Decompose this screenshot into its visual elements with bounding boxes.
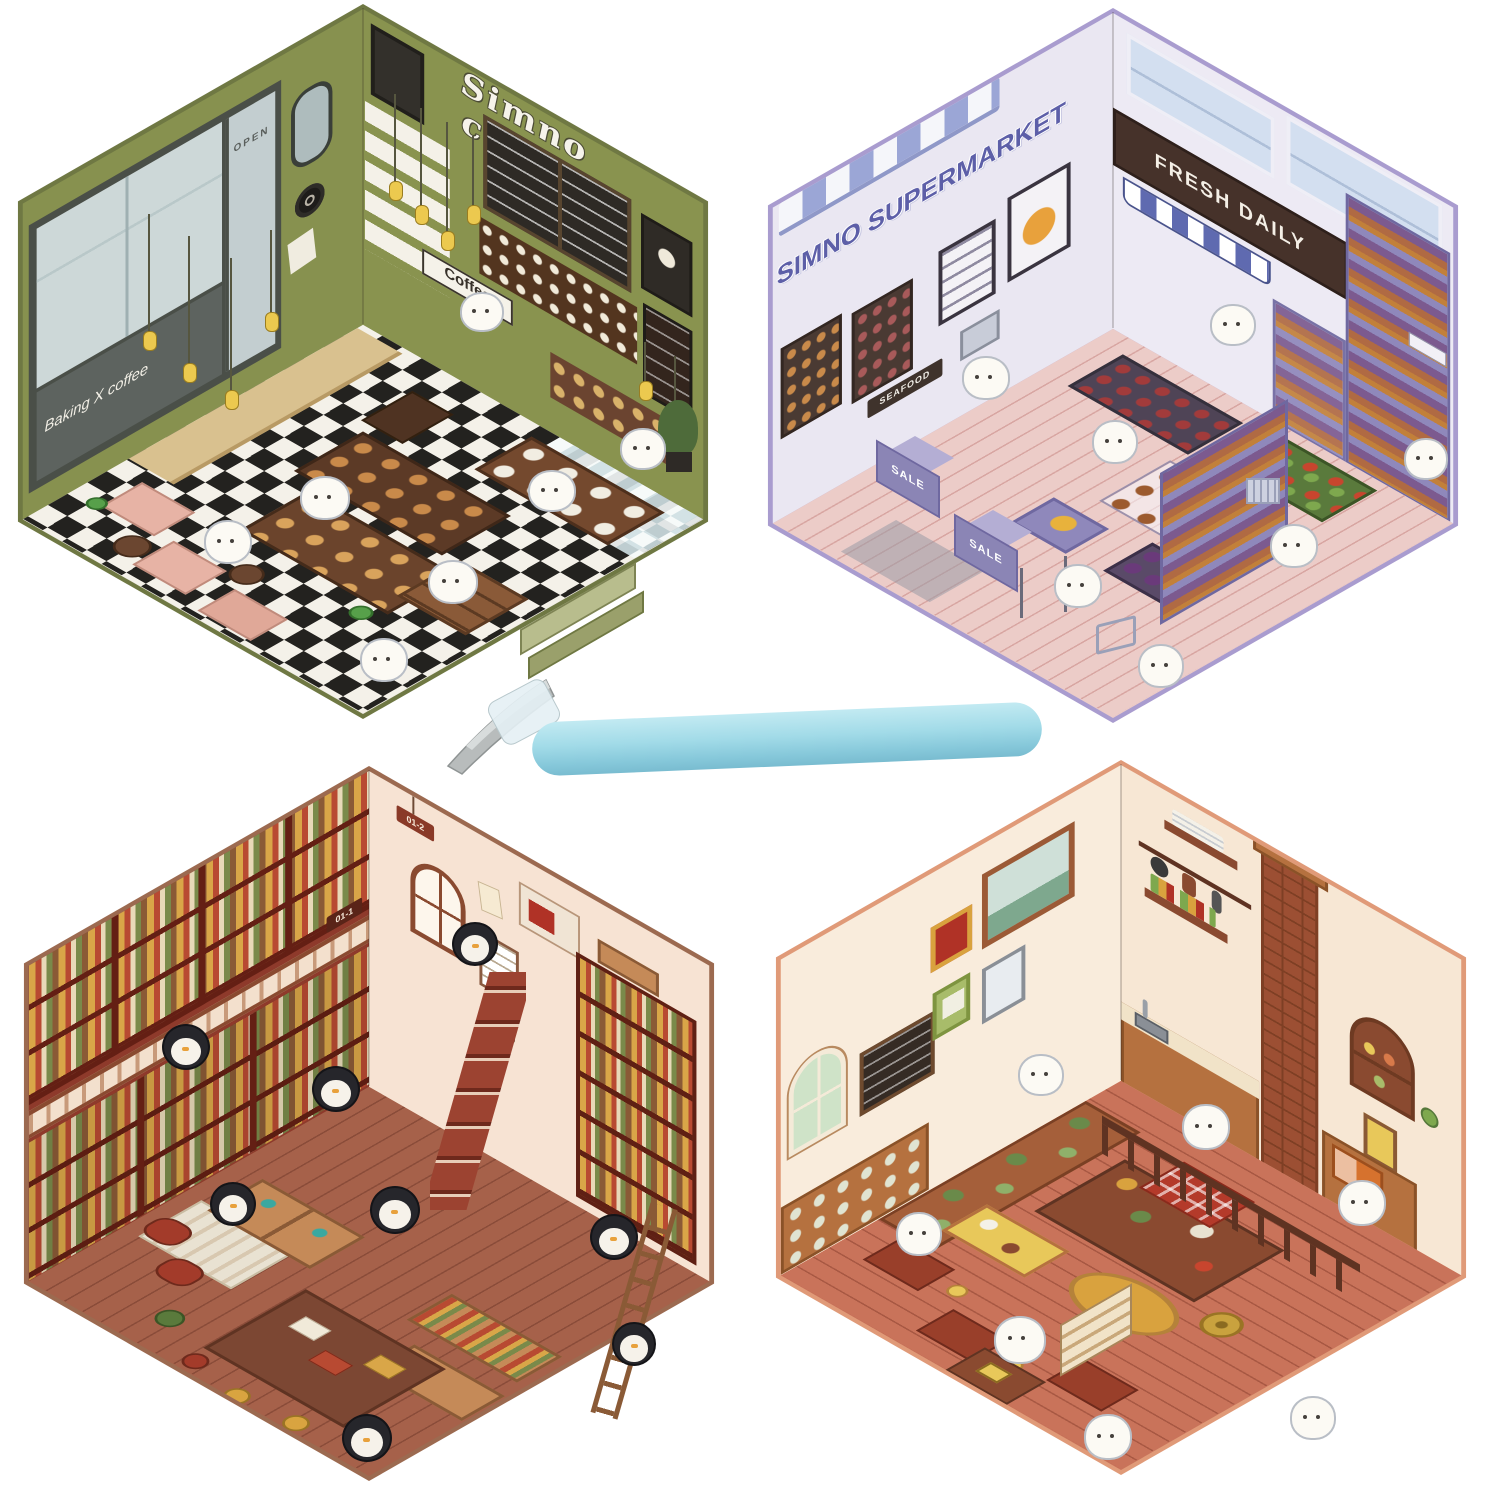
faucet-icon: [1143, 998, 1148, 1019]
character-bunny: [1182, 1104, 1230, 1150]
character-cat: [994, 1316, 1046, 1364]
shelf-divider: [198, 863, 205, 1007]
coffee-shop-diorama: Baking X coffee OPEN Simno coffee: [8, 4, 718, 719]
product-photo: Baking X coffee OPEN Simno coffee: [0, 0, 1500, 1495]
character-penguin: [342, 1414, 392, 1462]
pendant-lamp-icon: [394, 94, 396, 184]
shelf-divider: [137, 1076, 144, 1218]
supermarket-wall-corner-seam: [1112, 12, 1114, 328]
arched-window: [789, 1036, 846, 1158]
red-art-frame: [931, 904, 972, 973]
character-penguin: [370, 1186, 420, 1234]
character-bunny: [1138, 644, 1184, 688]
red-poster: [519, 881, 580, 960]
character-dog: [1084, 1414, 1132, 1460]
character-sheep: [360, 638, 408, 682]
character-sheep: [204, 520, 252, 564]
shelf-tag-01-2: 01-2: [397, 805, 434, 842]
wall-mirror: [291, 74, 332, 175]
character-cat: [1018, 1054, 1064, 1096]
menu-paper: [287, 228, 316, 275]
shelf-divider: [112, 913, 119, 1057]
sign-pole: [1020, 568, 1023, 618]
character-bunny: [1054, 564, 1102, 608]
character-bunny: [1210, 304, 1256, 346]
character-sheep: [460, 292, 504, 332]
poster-frame-1: [938, 219, 995, 327]
plant-pot: [666, 452, 692, 472]
library-diorama: 01-1 01-2: [14, 766, 724, 1481]
shelf-divider: [285, 813, 292, 957]
arched-niche-shelf: [1350, 1004, 1415, 1122]
character-penguin: [210, 1182, 256, 1226]
character-penguin: [612, 1322, 656, 1366]
character-cat: [896, 1212, 942, 1256]
character-bunny: [962, 356, 1010, 400]
character-penguin: [452, 922, 498, 966]
coffee-wall-corner-seam: [362, 8, 364, 324]
pendant-lamp-icon: [644, 342, 646, 384]
character-sheep: [620, 428, 666, 470]
pendant-lamp-icon: [148, 214, 150, 334]
character-penguin: [590, 1214, 638, 1260]
pendant-lamp-icon: [446, 122, 448, 234]
character-bunny: [1338, 1180, 1386, 1226]
brick-chimney: [1261, 846, 1318, 1198]
character-bunny: [1270, 524, 1318, 568]
wall-monitor: [960, 309, 999, 361]
poster-frame-smiley: [1007, 162, 1070, 283]
character-sheep: [428, 560, 478, 604]
pendant-lamp-icon: [420, 108, 422, 208]
pendant-lamp-icon: [472, 136, 474, 208]
character-penguin: [162, 1024, 210, 1070]
pendant-lamp-icon: [230, 258, 232, 393]
landscape-frame: [982, 821, 1075, 949]
wall-rack-1: [781, 313, 842, 439]
hanging-tag-string: [412, 796, 414, 815]
pendant-lamp-icon: [270, 230, 272, 315]
white-photo-frame: [982, 944, 1025, 1024]
kitchen-diorama: [766, 760, 1476, 1475]
character-bunny: [1092, 420, 1138, 464]
character-sheep: [300, 476, 350, 520]
hanging-plant-frog: [1421, 1104, 1439, 1132]
kitchen-wall-corner-seam: [1120, 764, 1122, 1080]
character-penguin: [312, 1066, 360, 1112]
character-bunny: [1404, 438, 1448, 480]
pinned-note: [478, 881, 503, 920]
character-bunny: [1290, 1396, 1336, 1440]
menu-blackboard: [860, 1010, 935, 1116]
pendant-lamp-icon: [188, 236, 190, 366]
character-sheep: [528, 470, 576, 512]
shopping-basket-stack: [1246, 478, 1280, 504]
vinyl-record-icon: [295, 177, 325, 224]
green-note-frame: [933, 972, 970, 1041]
shelf-divider: [250, 1011, 257, 1153]
library-wall-corner-seam: [368, 770, 370, 1086]
supermarket-diorama: SIMNO SUPERMARKET SEAFOOD FRESH DAILY: [758, 8, 1468, 723]
